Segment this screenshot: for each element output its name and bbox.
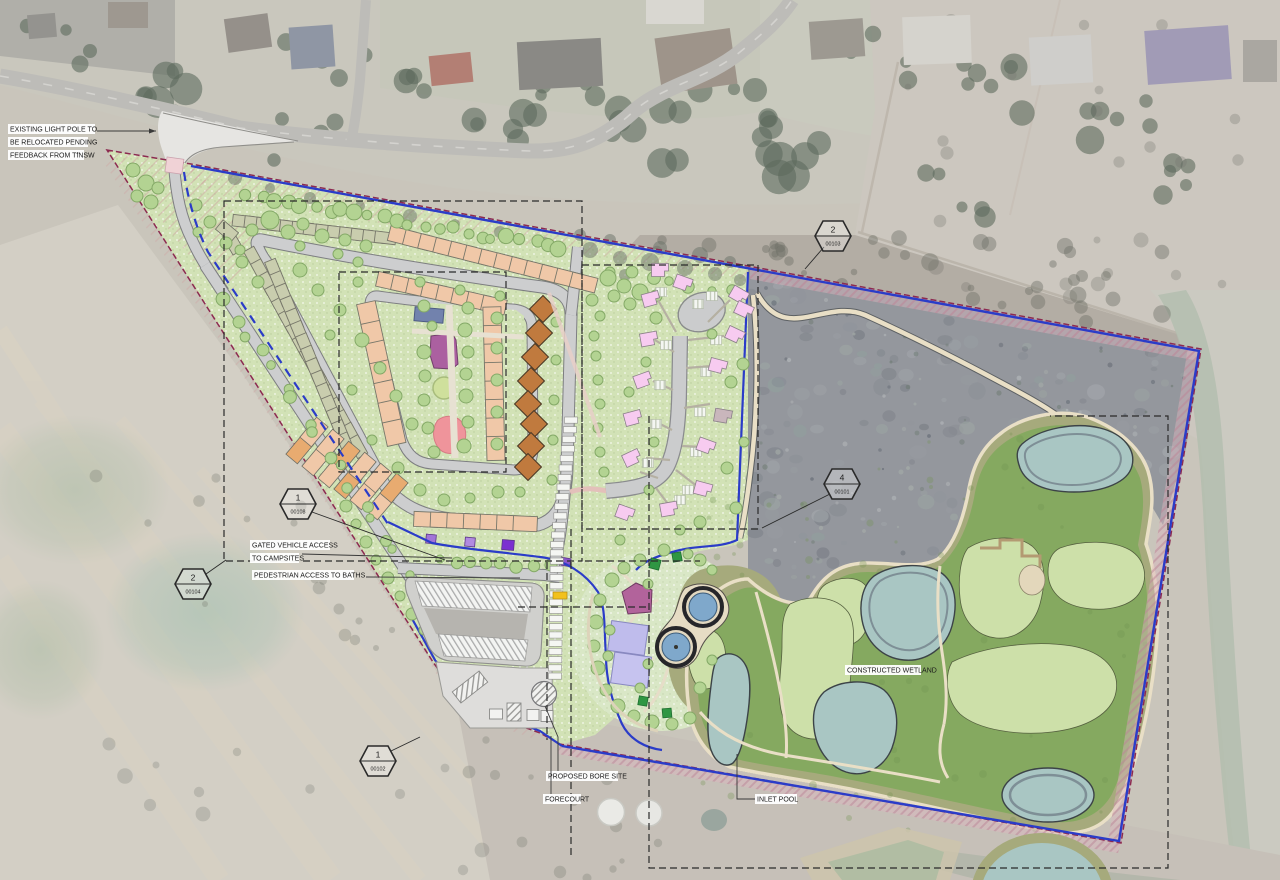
- svg-text:00108: 00108: [291, 510, 306, 516]
- svg-text:1: 1: [296, 493, 301, 503]
- svg-text:FORECOURT: FORECOURT: [545, 797, 590, 804]
- svg-text:00102: 00102: [371, 767, 386, 773]
- svg-text:PROPOSED BORE SITE: PROPOSED BORE SITE: [548, 774, 627, 781]
- svg-text:EXISTING LIGHT POLE TO: EXISTING LIGHT POLE TO: [10, 127, 98, 134]
- svg-text:2: 2: [831, 225, 836, 235]
- svg-text:CONSTRUCTED WETLAND: CONSTRUCTED WETLAND: [847, 668, 937, 675]
- svg-text:2: 2: [191, 573, 196, 583]
- svg-text:PEDESTRIAN ACCESS TO BATHS: PEDESTRIAN ACCESS TO BATHS: [254, 573, 366, 580]
- svg-text:TO CAMPSITES: TO CAMPSITES: [252, 556, 304, 563]
- svg-text:4: 4: [840, 473, 845, 483]
- svg-text:INLET POOL: INLET POOL: [757, 797, 798, 804]
- svg-text:00103: 00103: [826, 242, 841, 248]
- svg-text:00104: 00104: [186, 590, 201, 596]
- svg-text:BE RELOCATED PENDING: BE RELOCATED PENDING: [10, 140, 97, 147]
- svg-text:1: 1: [376, 750, 381, 760]
- svg-text:GATED VEHICLE ACCESS: GATED VEHICLE ACCESS: [252, 543, 338, 550]
- svg-text:00101: 00101: [835, 490, 850, 496]
- svg-text:FEEDBACK FROM TfNSW: FEEDBACK FROM TfNSW: [10, 153, 95, 160]
